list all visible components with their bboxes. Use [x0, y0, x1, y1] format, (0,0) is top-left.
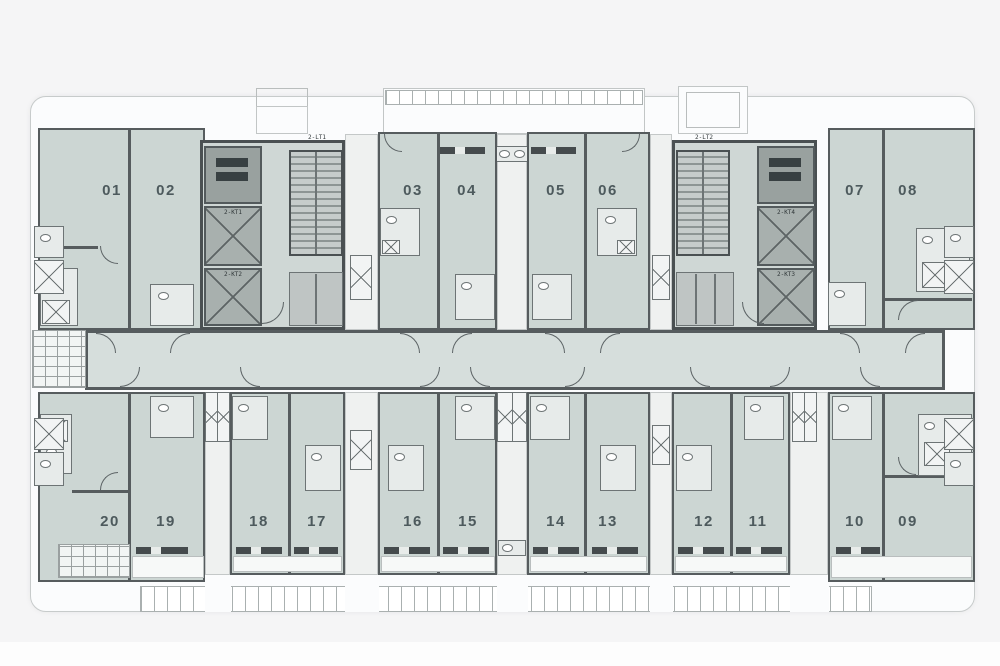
fixture-icon [514, 150, 525, 158]
partition-wall [884, 298, 972, 301]
kitchen-counter [236, 547, 282, 554]
unit-06-label: 06 [588, 182, 628, 200]
elevator-shaft: 2-KT2 [204, 268, 262, 326]
unit-02-label: 02 [146, 182, 186, 200]
toilet-icon [834, 290, 845, 298]
kitchen-counter [443, 547, 489, 554]
party-wall [730, 394, 733, 573]
shower [382, 240, 400, 254]
bathroom [388, 445, 424, 491]
bathroom [455, 274, 495, 320]
balcony [132, 556, 204, 578]
fixture-icon [499, 150, 510, 158]
unit-20-label: 20 [90, 513, 130, 531]
light-well [217, 392, 230, 442]
bathroom [232, 396, 268, 440]
unit-18-label: 18 [239, 513, 279, 531]
kitchen-counter [136, 547, 188, 554]
shaft-strip [345, 134, 378, 330]
bathroom [832, 396, 872, 440]
ac-platform [34, 418, 64, 450]
elevator-shaft: 2-KT3 [757, 268, 815, 326]
bathroom [150, 284, 194, 326]
kitchen-counter [836, 547, 880, 554]
toilet-icon [924, 422, 935, 430]
ac-platform [944, 418, 974, 450]
railing-gap [650, 586, 673, 612]
duct-bar [769, 158, 801, 167]
unit-04-label: 04 [447, 182, 487, 200]
unit-11-label: 11 [738, 513, 778, 531]
bathroom [305, 445, 341, 491]
center-shaft-strip [497, 134, 527, 330]
light-well [512, 392, 527, 442]
toilet-icon [922, 236, 933, 244]
party-wall [584, 134, 587, 328]
kitchen-counter [533, 547, 579, 554]
floor-plan-canvas: 2-KT1 2-KT2 2-LT1 2-LT2 2-KT4 2-KT3 [0, 0, 1000, 666]
bathroom [600, 445, 636, 491]
railing-gap [790, 586, 829, 612]
stairs-label: 2-LT2 [676, 133, 732, 142]
unit-07-label: 07 [835, 182, 875, 200]
ac-platform [34, 260, 64, 294]
edge-platform [34, 452, 64, 486]
railing-gap [345, 586, 379, 612]
ac-platform [944, 260, 974, 294]
edge-platform [944, 452, 974, 486]
fixture-icon [950, 460, 961, 468]
party-wall [437, 394, 440, 573]
balcony [381, 556, 495, 572]
page-margin [0, 642, 1000, 666]
bathroom [828, 282, 866, 326]
light-well [804, 392, 817, 442]
toilet-icon [461, 282, 472, 290]
kitchen-counter [678, 547, 724, 554]
kitchen-counter [736, 547, 782, 554]
bathroom [744, 396, 784, 440]
toilet-icon [750, 404, 761, 412]
bathroom [676, 445, 712, 491]
kitchen-counter [592, 547, 638, 554]
bathroom [530, 396, 570, 440]
partition-wall [72, 490, 128, 493]
room-divider [714, 274, 716, 324]
railing-gap [205, 586, 231, 612]
shower [617, 240, 635, 254]
top-balcony-railing [385, 90, 643, 105]
ac-shaft [350, 255, 372, 300]
unit-19-label: 19 [146, 513, 186, 531]
fixture-icon [950, 234, 961, 242]
west-balcony [32, 330, 86, 388]
kitchen-counter [440, 147, 485, 154]
ac-shaft [652, 255, 670, 300]
balcony-inner-outline [686, 92, 740, 128]
service-rooms [676, 272, 734, 326]
elevator-label: 2-KT1 [206, 209, 260, 217]
toilet-icon [682, 453, 693, 461]
duct-bar [769, 172, 801, 181]
party-wall [437, 134, 440, 328]
toilet-icon [394, 453, 405, 461]
corridor [85, 330, 945, 390]
fixture-icon [40, 460, 51, 468]
stair-divider [315, 152, 317, 254]
shaft-strip [650, 392, 672, 575]
shaft-strip [650, 134, 672, 330]
unit-17-label: 17 [297, 513, 337, 531]
bathroom [455, 396, 495, 440]
kitchen-counter [531, 147, 576, 154]
toilet-icon [158, 292, 169, 300]
unit-10-label: 10 [835, 513, 875, 531]
elevator-label: 2-KT3 [759, 271, 813, 279]
bathroom [532, 274, 572, 320]
unit-16-label: 16 [393, 513, 433, 531]
duct-bar [216, 172, 248, 181]
edge-platform [34, 226, 64, 258]
room-divider [315, 274, 317, 324]
elevator-label: 2-KT2 [206, 271, 260, 279]
kitchen-counter [294, 547, 338, 554]
duct-bar [216, 158, 248, 167]
unit-12-label: 12 [684, 513, 724, 531]
toilet-icon [838, 404, 849, 412]
ac-shaft [652, 425, 670, 465]
unit-09-label: 09 [888, 513, 928, 531]
elevator-shaft: 2-KT1 [204, 206, 262, 266]
fixture-icon [502, 544, 513, 552]
stairs-label: 2-LT1 [289, 133, 345, 142]
fixture-icon [40, 234, 51, 242]
unit-15-label: 15 [448, 513, 488, 531]
unit-13-label: 13 [588, 513, 628, 531]
balcony-bump-left-core [256, 106, 308, 134]
room-divider [695, 274, 697, 324]
party-wall [288, 394, 291, 573]
unit-03-label: 03 [393, 182, 433, 200]
party-wall [882, 394, 885, 580]
unit-01-label: 01 [92, 182, 132, 200]
balcony [831, 556, 972, 578]
toilet-icon [606, 453, 617, 461]
light-well [497, 392, 513, 442]
elevator-shaft: 2-KT4 [757, 206, 815, 266]
unit-14-label: 14 [536, 513, 576, 531]
edge-platform [944, 226, 974, 258]
bay-window [58, 544, 130, 578]
elevator-label: 2-KT4 [759, 209, 813, 217]
toilet-icon [238, 404, 249, 412]
balcony [675, 556, 787, 572]
unit-08-label: 08 [888, 182, 928, 200]
toilet-icon [605, 216, 616, 224]
bathroom [150, 396, 194, 438]
party-wall [128, 130, 131, 328]
balcony [530, 556, 647, 572]
unit-05-label: 05 [536, 182, 576, 200]
kitchen-counter [384, 547, 430, 554]
shower [42, 300, 70, 324]
toilet-icon [536, 404, 547, 412]
ac-shaft [350, 430, 372, 470]
shaft-strip [345, 392, 378, 575]
toilet-icon [311, 453, 322, 461]
railing-gap [497, 586, 528, 612]
party-wall [584, 394, 587, 573]
toilet-icon [158, 404, 169, 412]
balcony [233, 556, 342, 572]
toilet-icon [461, 404, 472, 412]
stair-divider [702, 152, 704, 254]
toilet-icon [538, 282, 549, 290]
toilet-icon [386, 216, 397, 224]
